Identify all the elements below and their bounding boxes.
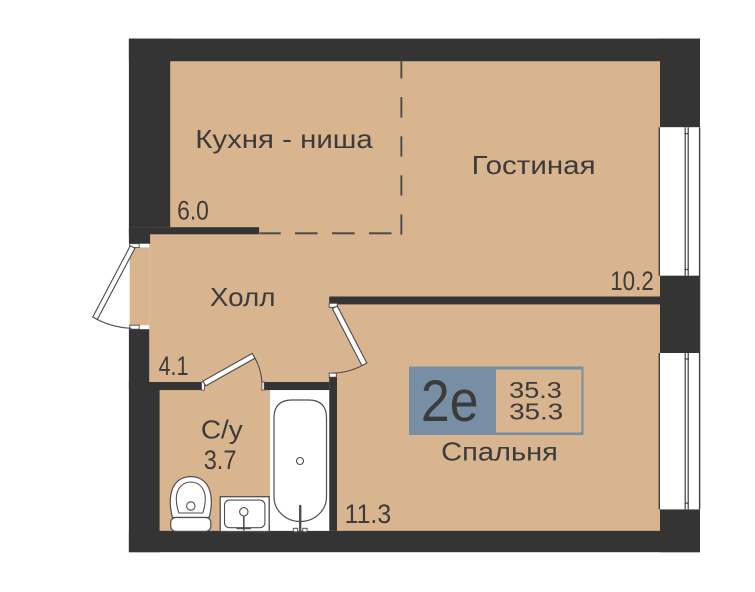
svg-text:Спальня: Спальня xyxy=(441,437,558,467)
svg-text:11.3: 11.3 xyxy=(345,499,392,529)
svg-text:Кухня - ниша: Кухня - ниша xyxy=(195,124,373,154)
svg-text:6.0: 6.0 xyxy=(177,196,209,226)
svg-text:Холл: Холл xyxy=(210,282,276,312)
svg-text:35.3: 35.3 xyxy=(509,398,563,424)
svg-text:4.1: 4.1 xyxy=(159,351,189,381)
svg-text:Гостиная: Гостиная xyxy=(472,150,596,180)
svg-text:2е: 2е xyxy=(421,369,479,434)
svg-text:10.2: 10.2 xyxy=(610,266,654,296)
svg-text:3.7: 3.7 xyxy=(204,445,237,475)
svg-text:С/у: С/у xyxy=(201,415,243,445)
